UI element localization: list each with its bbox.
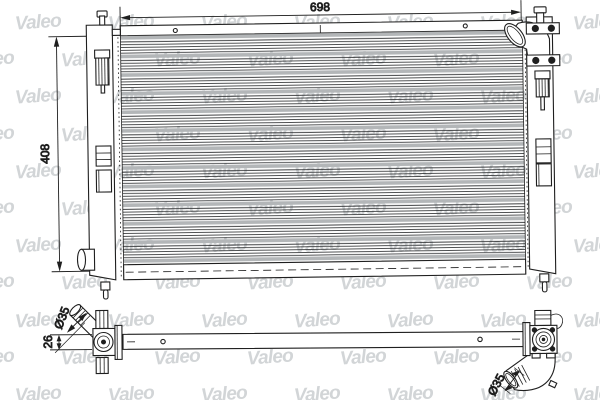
- side-left-flange: [115, 325, 122, 359]
- thickness-dimension-label: 26: [41, 335, 55, 349]
- left-tank-core-joint: [112, 29, 120, 35]
- pipe-left-diameter-label: Ø35: [51, 304, 72, 331]
- product-image: ValeoValeoValeoValeoValeoValeoValeoValeo…: [0, 0, 600, 400]
- left-drain-plug: [101, 282, 110, 299]
- side-view-hole-right: [478, 337, 482, 341]
- height-dimension-label: 408: [38, 143, 52, 164]
- side-left-bracket-bottom: [96, 357, 108, 373]
- core-top-hole-right: [463, 24, 467, 28]
- side-left-bracket-top: [96, 310, 108, 328]
- dimension-height: 408: [36, 36, 89, 272]
- block-corner-bolt: [550, 346, 555, 351]
- block-corner-bolt: [532, 327, 537, 332]
- side-right-cap: [535, 310, 551, 325]
- side-right-connector: [501, 310, 563, 390]
- width-dimension-label: 698: [310, 0, 331, 14]
- side-view-bar: [123, 332, 524, 350]
- radiator-front-view: 698 408: [36, 0, 563, 300]
- left-tank: [74, 11, 124, 300]
- side-left-connector: [68, 303, 122, 374]
- core-top-hole-left: [173, 28, 177, 32]
- radiator-side-view: 26 Ø35: [41, 299, 563, 400]
- radiator-core: [118, 20, 529, 280]
- block-corner-bolt: [550, 327, 555, 332]
- dimension-thickness: 26: [41, 335, 92, 350]
- right-drain-plug: [540, 274, 549, 292]
- radiator-drawing: 698 408: [0, 0, 600, 400]
- block-corner-bolt: [532, 346, 537, 351]
- right-tank-mid-bracket: [536, 139, 552, 186]
- right-tank-cap: [534, 7, 546, 13]
- left-outlet-pipe: [77, 249, 94, 270]
- core-fins: [120, 30, 525, 265]
- side-right-flange: [523, 323, 530, 356]
- side-view-hole-left: [161, 339, 165, 343]
